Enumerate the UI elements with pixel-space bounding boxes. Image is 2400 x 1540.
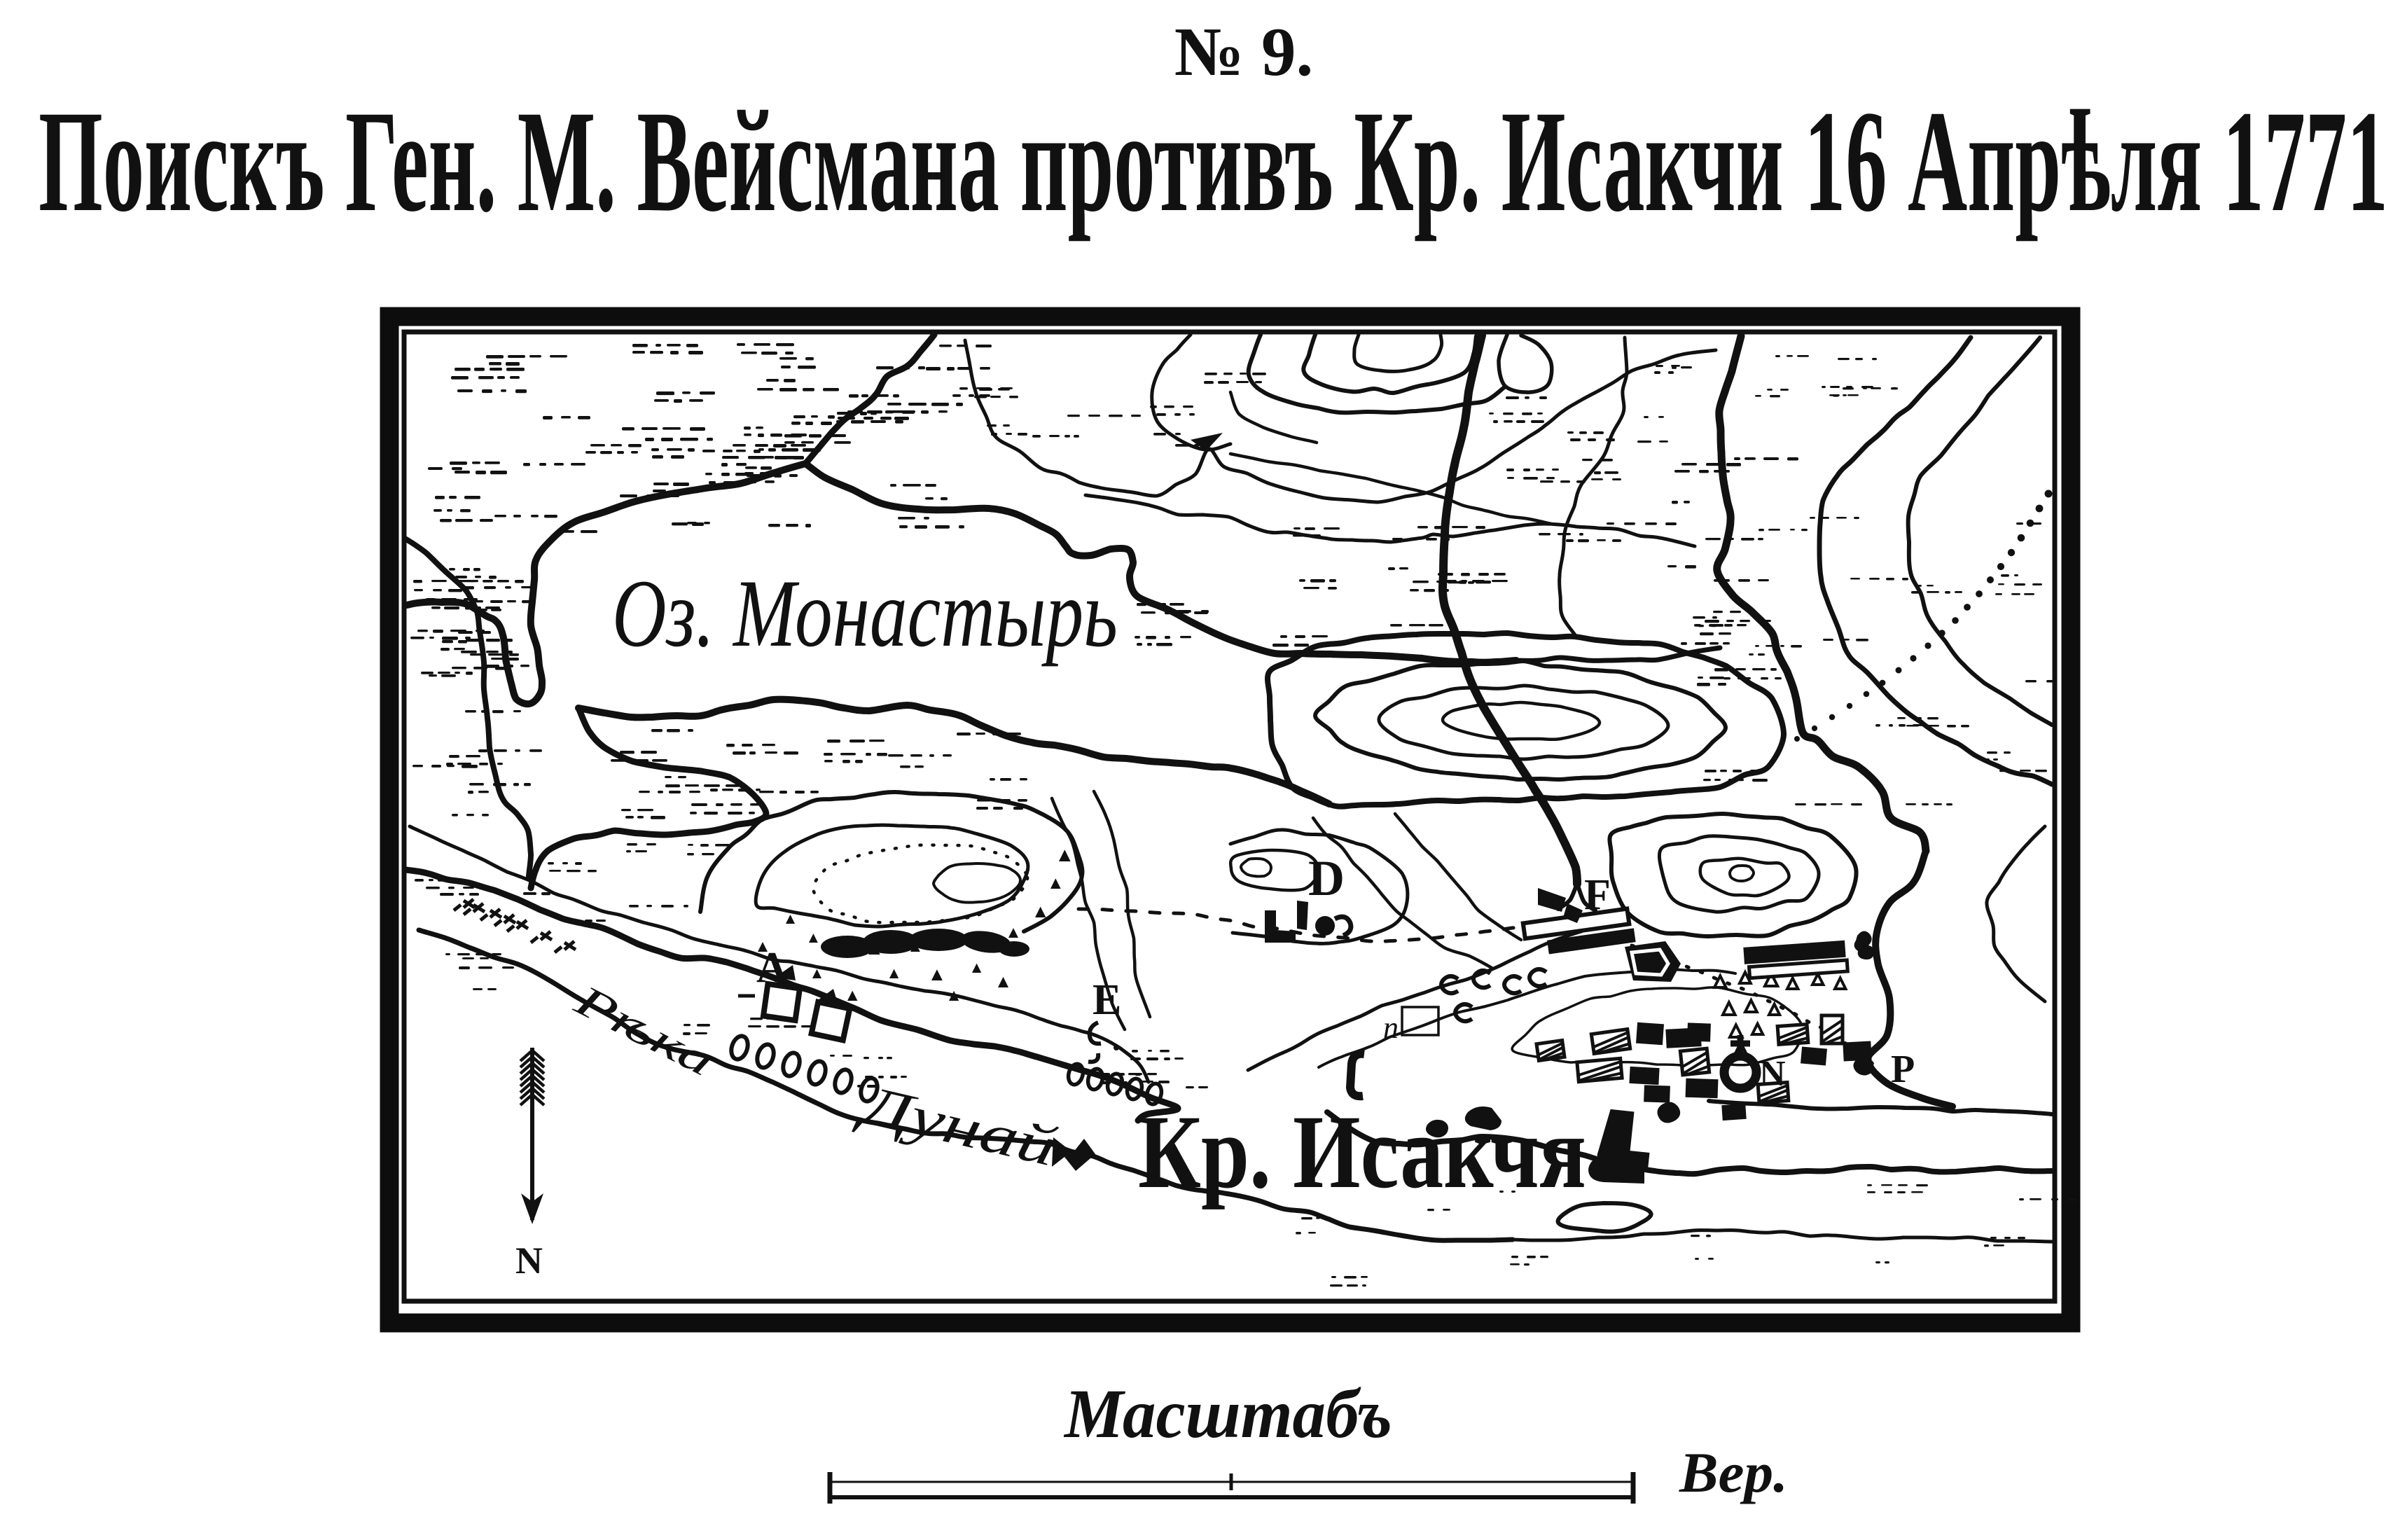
svg-text:Масштабъ: Масштабъ [1063,1375,1392,1452]
svg-text:Оз. Монастырь: Оз. Монастырь [612,560,1118,667]
svg-text:Вер.: Вер. [1679,1441,1788,1504]
svg-text:N: N [1759,1054,1786,1094]
svg-text:№ 9.: № 9. [1174,14,1313,90]
svg-text:A: A [756,944,788,992]
svg-text:Кр. Исакчя: Кр. Исакчя [1138,1094,1586,1210]
svg-text:п: п [1383,1011,1399,1045]
svg-text:D: D [1308,850,1345,906]
svg-text:F: F [1584,871,1611,919]
svg-text:P: P [1891,1048,1915,1091]
svg-text:E: E [1093,976,1121,1024]
svg-text:N: N [515,1240,543,1282]
svg-text:Поискъ Ген. М. Вейсмана против: Поискъ Ген. М. Вейсмана противъ Кр. Исак… [39,81,2388,242]
